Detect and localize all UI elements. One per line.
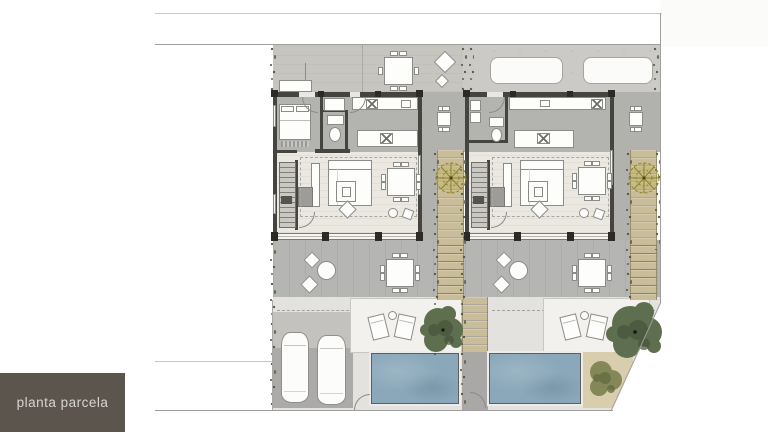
chair-icon: [634, 127, 642, 132]
bench-wall-line: [305, 63, 306, 81]
hedge: [652, 45, 660, 92]
hob-icon: [366, 99, 378, 109]
chair-icon: [380, 273, 385, 281]
bathroom-sink: [327, 115, 344, 125]
hob-icon: [380, 133, 393, 144]
pouf-round: [579, 208, 589, 218]
bistro-table: [509, 261, 528, 280]
plot-boundary-right: [660, 13, 661, 303]
swimming-pool-left: [371, 353, 459, 404]
hob-icon: [537, 133, 550, 144]
chair-icon: [634, 106, 642, 111]
column: [322, 232, 329, 241]
chair-icon: [392, 288, 400, 293]
column: [608, 232, 615, 241]
chair-icon: [393, 197, 401, 202]
sidewalk-line: [155, 361, 273, 362]
plot-boundary-left: [272, 300, 273, 410]
column: [514, 232, 521, 241]
unit-b-rear-glazing: [465, 233, 614, 240]
plot-boundary-top-outer: [155, 13, 662, 14]
chair-icon: [415, 273, 420, 281]
unit-a-living-window: [273, 194, 276, 214]
chair-icon: [572, 273, 577, 281]
bench: [279, 80, 312, 92]
chair-icon: [592, 161, 600, 166]
kitchen-sink: [540, 100, 550, 107]
pillow: [281, 106, 294, 112]
title-block: planta parcela: [0, 373, 125, 432]
swimming-pool-right: [489, 353, 581, 404]
side-table: [629, 112, 643, 126]
unit-a-bath-bottom-wall: [315, 149, 350, 153]
car: [317, 335, 346, 405]
chair-icon: [378, 67, 383, 75]
chair-icon: [607, 181, 612, 189]
chair-icon: [592, 253, 600, 258]
unit-a-bedroom-bottom-wall: [277, 150, 297, 153]
chair-icon: [572, 265, 577, 273]
lounger-side-table: [388, 311, 397, 320]
bathroom-sink: [489, 117, 504, 127]
tree-olive-icon: [626, 158, 662, 198]
chair-icon: [442, 127, 450, 132]
dining-table: [578, 167, 606, 195]
side-table: [437, 112, 451, 126]
outdoor-dining-table: [578, 259, 606, 287]
chair-icon: [380, 265, 385, 273]
chair-icon: [415, 265, 420, 273]
parking-pad: [490, 57, 563, 84]
chair-icon: [400, 288, 408, 293]
chair-icon: [390, 51, 398, 56]
column: [375, 232, 382, 241]
chair-icon: [592, 196, 600, 201]
chair-icon: [400, 253, 408, 258]
chair-icon: [584, 161, 592, 166]
plot-boundary-bottom: [155, 410, 613, 411]
tree-olive-icon: [433, 158, 469, 198]
hob-icon: [591, 99, 603, 109]
stair-landing: [281, 196, 292, 204]
staircase: [471, 162, 488, 228]
column: [416, 90, 423, 97]
outdoor-dining-table: [384, 57, 413, 85]
kitchen-sink: [401, 100, 411, 108]
site-plan-canvas: planta parcela: [0, 0, 768, 432]
chair-icon: [584, 196, 592, 201]
toilet: [329, 127, 341, 142]
pouf-round: [388, 208, 398, 218]
laundry-unit: [470, 100, 481, 111]
column: [416, 232, 423, 241]
chair-icon: [572, 181, 577, 189]
cabinet: [470, 112, 481, 123]
chair-icon: [392, 253, 400, 258]
chair-icon: [416, 174, 421, 182]
stair-landing: [473, 196, 484, 204]
unit-b-bath-wall: [505, 97, 508, 142]
chair-icon: [399, 51, 407, 56]
unit-b-bath-bottom-wall: [469, 140, 508, 143]
coffee-table-inner: [342, 187, 351, 197]
staircase: [279, 162, 296, 228]
chair-icon: [390, 86, 398, 91]
chair-icon: [381, 174, 386, 182]
hedge: [269, 240, 277, 408]
context-shading: [661, 0, 768, 46]
unit-a-bath-wall-right: [345, 110, 348, 152]
chair-icon: [584, 288, 592, 293]
chair-icon: [401, 197, 409, 202]
chair-icon: [442, 106, 450, 111]
chair-icon: [607, 173, 612, 181]
hedge: [269, 45, 277, 92]
bed-bench: [281, 141, 309, 147]
terrace-divider-line: [362, 45, 363, 92]
outdoor-dining-table: [386, 259, 414, 287]
column: [318, 91, 324, 97]
unit-a-rear-glazing: [273, 233, 422, 240]
unit-a-bedroom-window: [273, 105, 276, 127]
blanket-line: [280, 120, 310, 121]
plot-boundary-top: [155, 44, 661, 45]
lounger-side-table: [580, 311, 589, 320]
toilet: [491, 128, 502, 142]
column: [567, 232, 574, 241]
car: [281, 332, 309, 403]
wardrobe: [324, 98, 345, 111]
chair-icon: [414, 67, 419, 75]
chair-icon: [399, 86, 407, 91]
hedge: [460, 45, 474, 92]
chair-icon: [592, 288, 600, 293]
bistro-table: [317, 261, 336, 280]
chair-icon: [401, 162, 409, 167]
chair-icon: [584, 253, 592, 258]
chair-icon: [381, 182, 386, 190]
dining-table: [387, 168, 415, 196]
chair-icon: [416, 182, 421, 190]
chair-icon: [572, 173, 577, 181]
coffee-table-inner: [534, 187, 543, 197]
chair-icon: [393, 162, 401, 167]
chair-icon: [607, 265, 612, 273]
tree-green-icon: [418, 300, 468, 358]
parking-pad: [583, 57, 653, 84]
column: [608, 90, 615, 97]
unit-a-bath-wall-left: [320, 97, 323, 152]
plan-title: planta parcela: [17, 395, 109, 410]
chair-icon: [607, 273, 612, 281]
